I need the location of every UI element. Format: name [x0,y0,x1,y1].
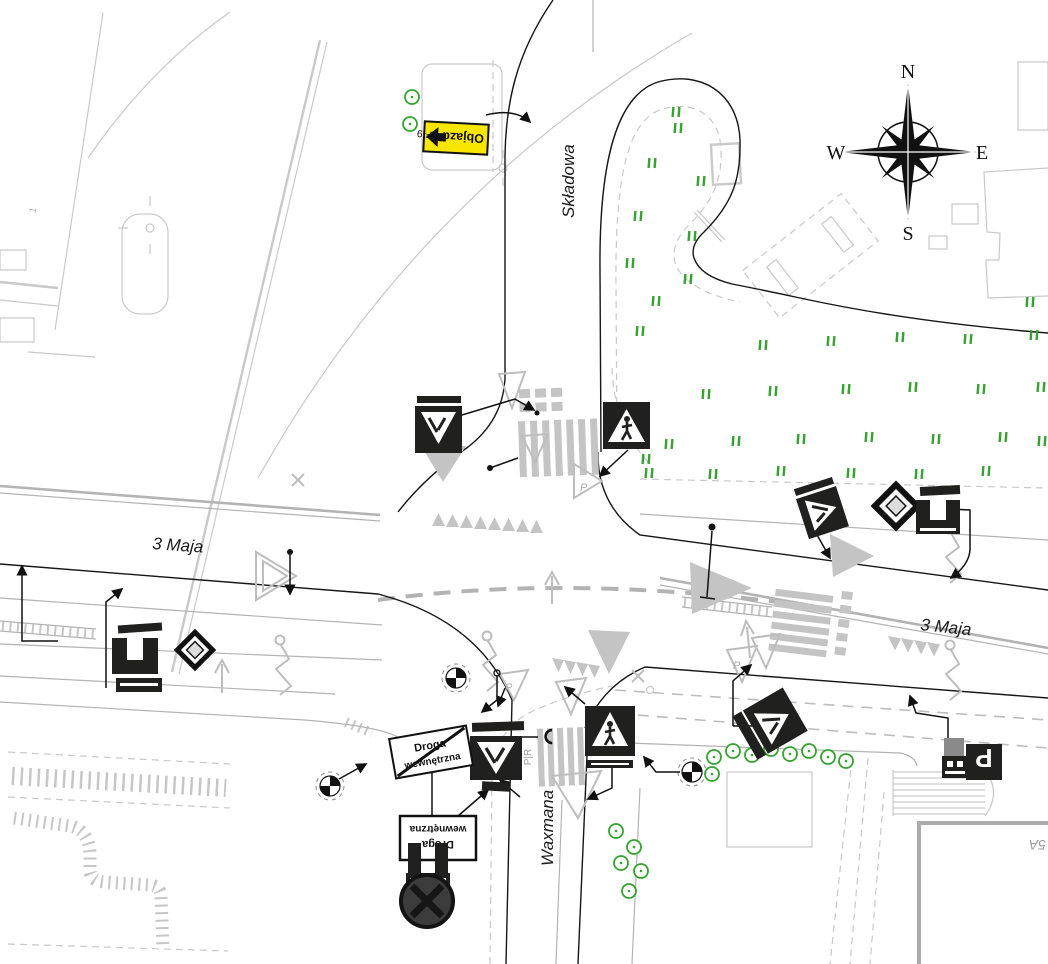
yield-teeth-row-east [888,636,940,657]
yield-sign-mini-center [470,721,524,792]
building-outline-right [984,168,1048,298]
loop-road-edge [600,79,1048,452]
crossing-label-pr: P|R [523,749,534,766]
pavement-label-p: P [505,682,513,694]
sign-plate-cluster-west [112,622,162,692]
lane-arrow-marking [830,534,874,577]
loop-road-inner-dashed [616,106,740,440]
street-label-3maja-east: 3 Maja [920,615,973,639]
compass-north-label: N [901,61,915,83]
plan-drawing: Objazd F-9 P [0,0,1048,964]
street-label-3maja-west: 3 Maja [152,534,204,557]
sign-plate-cluster-east [916,485,960,534]
detour-sign-code: F-9 [416,127,433,140]
yield-sign-mini [415,396,462,453]
parking-sign-letter: P [975,743,992,773]
internal-road-end-sign: Droga wewnętrzna [389,726,473,779]
pavement-label-p: P [580,482,588,494]
street-label-skladowa: Składowa [559,144,578,218]
survey-point-icon [442,664,470,692]
survey-background-linework [0,0,1048,674]
compass-east-label: E [976,142,988,164]
street-label-waxmana: Waxmana [538,790,557,866]
pedestrian-crossing-sign [603,402,650,449]
building-outline-dashed [743,194,878,318]
compass-rose: N E S W [827,61,989,245]
road-black-edges [0,0,1048,964]
survey-point-icon [678,758,706,786]
compass-west-label: W [827,142,846,164]
pavement-label-p: P [733,660,741,672]
compass-south-label: S [902,223,913,245]
parking-comb-southwest [14,818,163,948]
tree-icon [405,90,419,104]
survey-label-1: 1 [27,206,39,215]
zebra-crossing-waxmana [537,727,585,787]
street-lamp-icon [276,636,292,696]
tree-icon [403,117,417,131]
building-edge-thick [919,823,1048,964]
building-label-5a: 5A [1029,837,1046,853]
internal-road-line2: wewnętrzna [409,823,467,834]
priority-road-diamond-sign [871,481,922,532]
street-lamp-icon [483,632,499,692]
traffic-organization-plan: Objazd F-9 P [0,0,1048,964]
yield-teeth-row-west [432,513,543,533]
no-stopping-sign [401,875,453,927]
detour-sign: Objazd [423,121,488,154]
zebra-crossing-skladowa [517,387,599,478]
yield-teeth-row-south [552,658,600,678]
yield-triangle-marking [690,562,752,614]
zebra-crossing-3maja [768,583,853,660]
pedestrian-crossing-sign-south [585,706,635,768]
leader-lines [22,113,970,816]
parking-sign: P [942,738,1002,780]
yield-sign-mini-rotated [793,477,849,539]
parking-comb-west [12,776,226,788]
survey-point-icon [316,772,344,800]
detour-sign-label: Objazd [442,129,484,145]
